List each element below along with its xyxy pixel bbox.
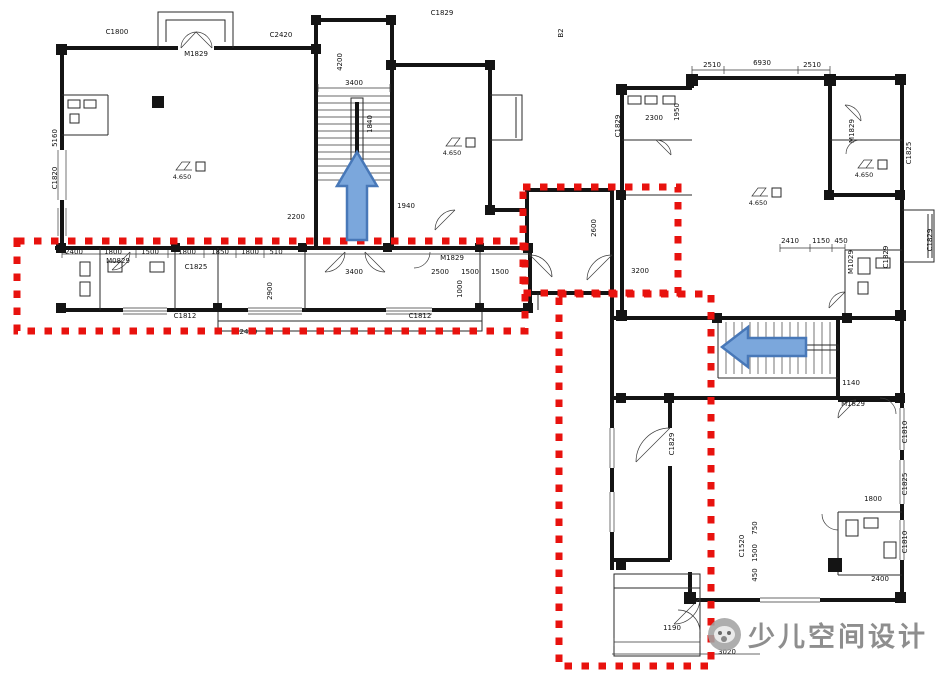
- dim-label: 1800: [104, 248, 122, 256]
- dim-label: C1820: [51, 167, 59, 190]
- right-wing-walls: [607, 66, 934, 656]
- dim-label: 2500: [431, 268, 449, 276]
- dim-label: 450: [834, 237, 847, 245]
- dim-label: 2400: [65, 248, 83, 256]
- zone-connector: [523, 187, 678, 293]
- elevation-flag-icon: [858, 160, 874, 168]
- dim-label: 1500: [751, 544, 759, 562]
- floor-plan-page: C1800M1829C2420C1829B2340042001840C18205…: [0, 0, 940, 679]
- dim-label: 750: [751, 521, 759, 534]
- elevation-flag-icon: [176, 162, 192, 170]
- watermark-text: 少儿空间设计: [748, 615, 928, 654]
- room-label-glyph: [772, 188, 781, 197]
- brand-circle-logo-icon: [708, 618, 741, 651]
- dim-label: B2: [557, 28, 565, 37]
- dim-label: 1190: [663, 624, 681, 632]
- dim-label: 3400: [345, 79, 363, 87]
- left-arrow-right-stair: [722, 327, 806, 367]
- dim-label: C1810: [901, 421, 909, 444]
- dim-label: C1810: [901, 531, 909, 554]
- dim-label: 2600: [590, 219, 598, 237]
- dim-label: 1500: [491, 268, 509, 276]
- dim-label: 450: [751, 568, 759, 581]
- dim-label: C1829: [926, 229, 934, 252]
- dim-label: 1800: [864, 495, 882, 503]
- dim-label: 1940: [397, 202, 415, 210]
- dim-label: 510: [269, 248, 282, 256]
- dim-label: C1800: [106, 28, 129, 36]
- dim-label: 1150: [812, 237, 830, 245]
- dim-label: C1829: [431, 9, 454, 17]
- dim-label: 2300: [645, 114, 663, 122]
- dim-label: 1800: [241, 248, 259, 256]
- room-label-glyph: [196, 162, 205, 171]
- dim-label: 5160: [51, 129, 59, 147]
- dim-label: 3400: [345, 268, 363, 276]
- dim-label: 6930: [753, 59, 771, 67]
- dim-label: 1000: [456, 280, 464, 298]
- floor-plan-drawing: C1800M1829C2420C1829B2340042001840C18205…: [0, 0, 940, 679]
- dim-label: 4200: [336, 53, 344, 71]
- dim-label: M1829: [841, 400, 865, 408]
- elevation-flag-icon: [752, 188, 768, 196]
- dim-label: 1840: [366, 115, 374, 133]
- dim-label: 1850: [211, 248, 229, 256]
- dim-label: C1520: [738, 535, 746, 558]
- dim-label: C1829: [668, 433, 676, 456]
- dim-label: 2510: [803, 61, 821, 69]
- dim-label: M0829: [106, 257, 130, 265]
- dim-label: C1825: [901, 473, 909, 496]
- dim-label: 2200: [287, 213, 305, 221]
- dim-label: 1140: [842, 379, 860, 387]
- dim-label: 1500: [461, 268, 479, 276]
- dim-label: M1829: [848, 119, 856, 143]
- connector-walls: [530, 255, 612, 310]
- dim-label: C1812: [174, 312, 197, 320]
- dim-label: 1950: [673, 103, 681, 121]
- dim-label: C1812: [409, 312, 432, 320]
- dim-label: M1029: [847, 250, 855, 274]
- dim-label: 1500: [141, 248, 159, 256]
- dim-label: 2900: [266, 282, 274, 300]
- elevation-flag-icon: [446, 138, 462, 146]
- dim-label: M1829: [440, 254, 464, 262]
- up-arrow-left-stair: [337, 152, 377, 240]
- dim-label: C1825: [905, 142, 913, 165]
- dim-label: 1800: [178, 248, 196, 256]
- elevation-value: 4.650: [443, 149, 462, 157]
- dim-label: 2510: [703, 61, 721, 69]
- elevation-marks: 4.6504.6504.6504.650: [173, 138, 887, 207]
- room-label-glyph: [466, 138, 475, 147]
- elevation-value: 4.650: [173, 173, 192, 181]
- direction-arrows: [337, 152, 806, 367]
- dim-label: C2420: [270, 31, 293, 39]
- elevation-value: 4.650: [749, 199, 768, 207]
- room-label-glyph: [878, 160, 887, 169]
- dim-label: C1829: [882, 246, 890, 269]
- dim-label: 2410: [781, 237, 799, 245]
- dim-label: 3200: [631, 267, 649, 275]
- dim-label: C1829: [614, 115, 622, 138]
- dim-label: 2400: [871, 575, 889, 583]
- dim-label: C1825: [185, 263, 208, 271]
- dim-label: M1829: [184, 50, 208, 58]
- watermark: 少儿空间设计: [708, 615, 928, 654]
- elevation-value: 4.650: [855, 171, 874, 179]
